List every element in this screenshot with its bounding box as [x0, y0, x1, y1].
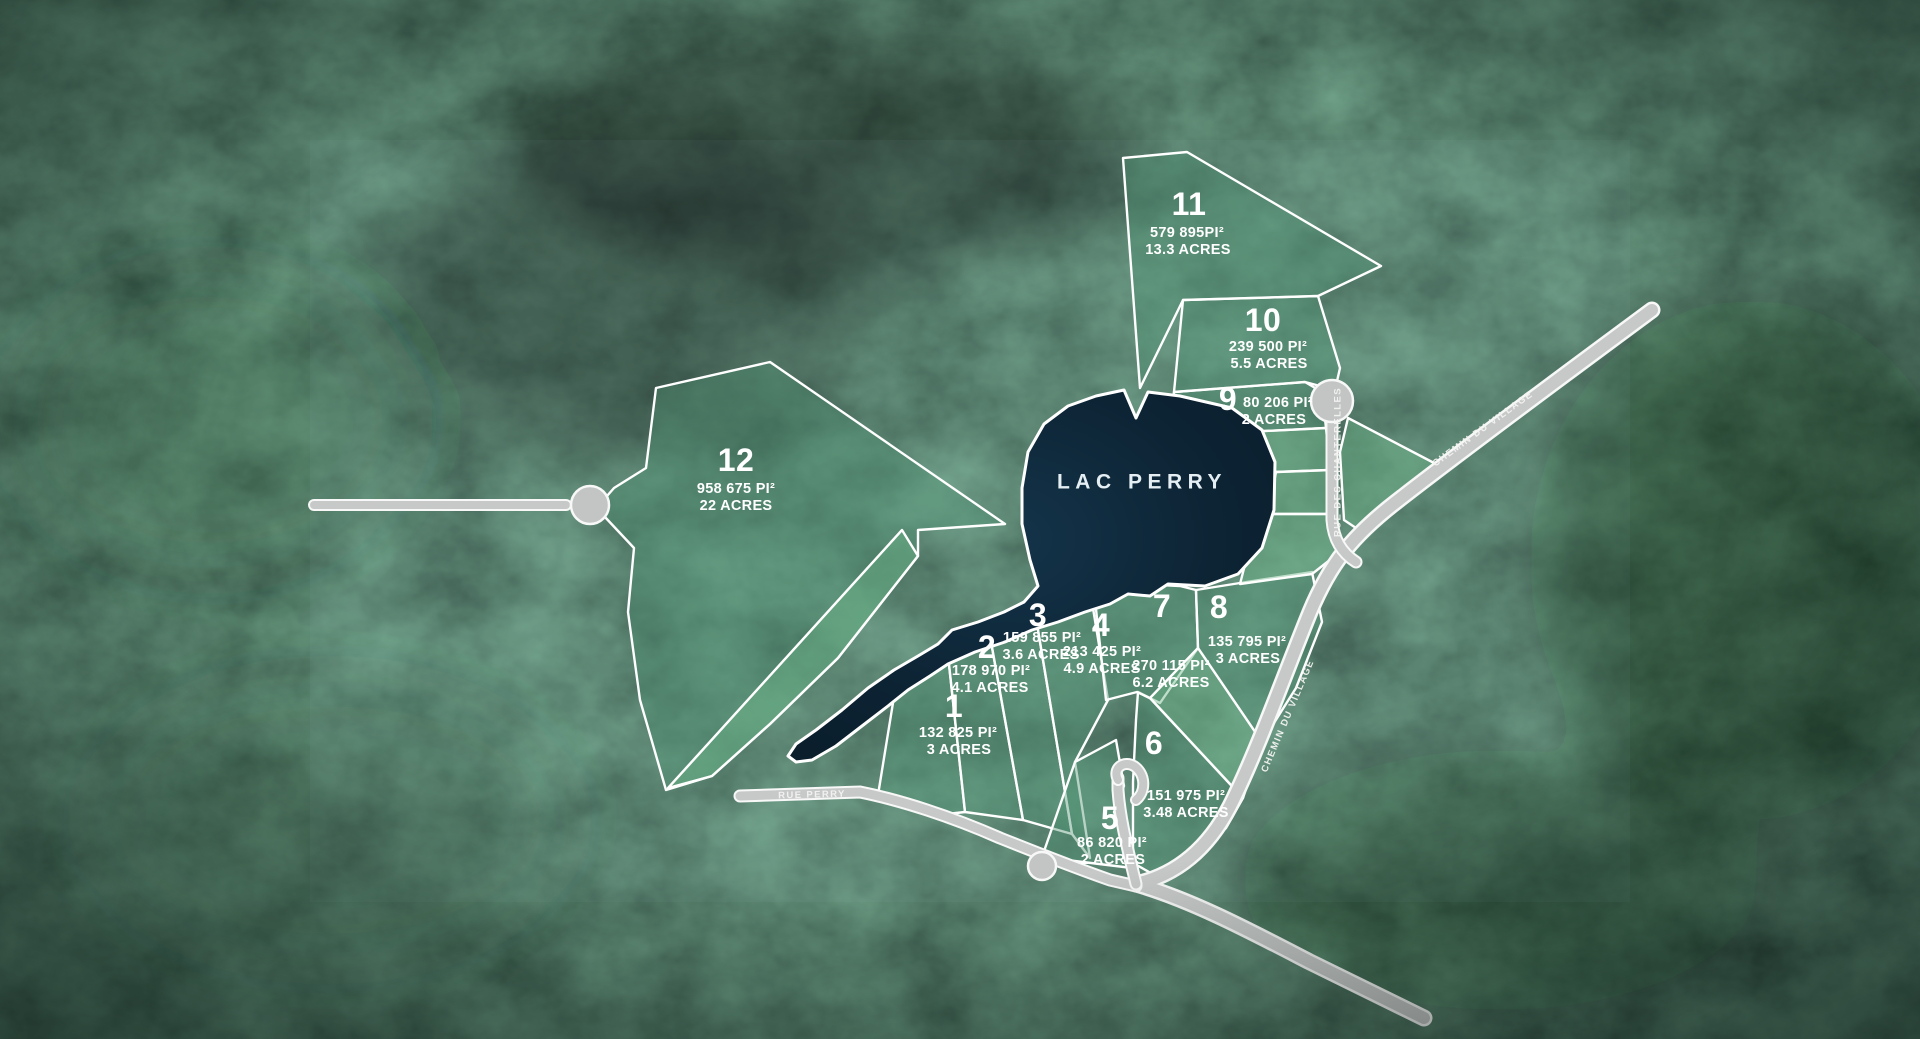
plat-map-svg: RUE PERRY RUE DES CHANTERELLES CHEMIN DU… [0, 0, 1920, 1039]
lot-map: RUE PERRY RUE DES CHANTERELLES CHEMIN DU… [0, 0, 1920, 1039]
vignette-overlay [0, 0, 1920, 1039]
